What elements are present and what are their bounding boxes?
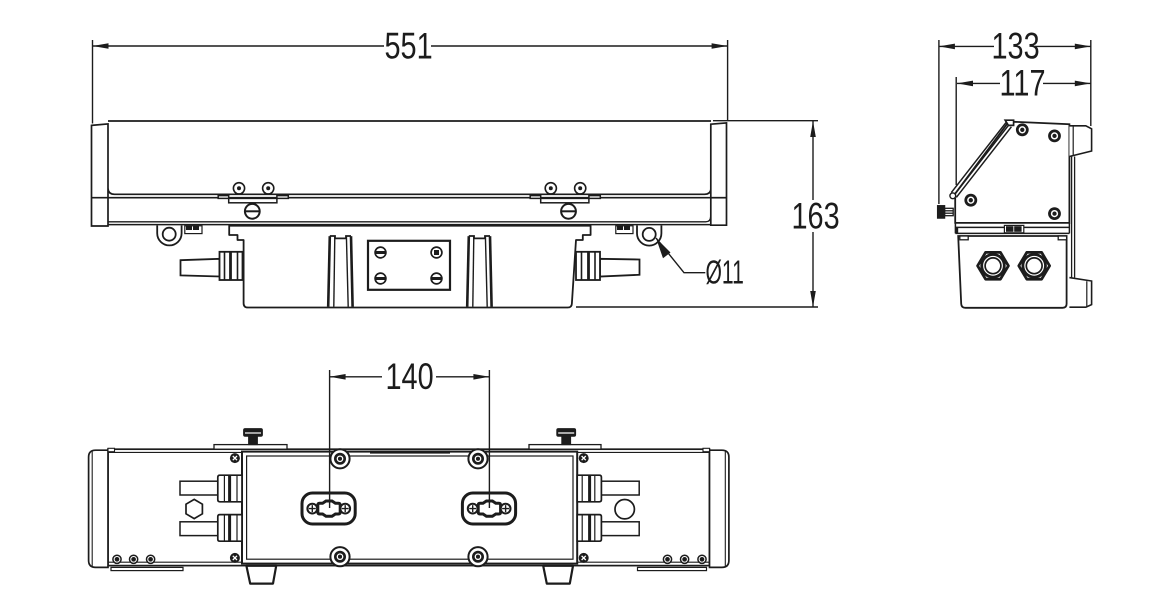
svg-text:163: 163: [792, 196, 840, 237]
svg-text:133: 133: [992, 26, 1040, 67]
svg-text:Ø11: Ø11: [706, 254, 744, 291]
svg-text:551: 551: [385, 26, 433, 67]
svg-text:140: 140: [386, 357, 434, 398]
svg-text:117: 117: [1000, 63, 1046, 104]
